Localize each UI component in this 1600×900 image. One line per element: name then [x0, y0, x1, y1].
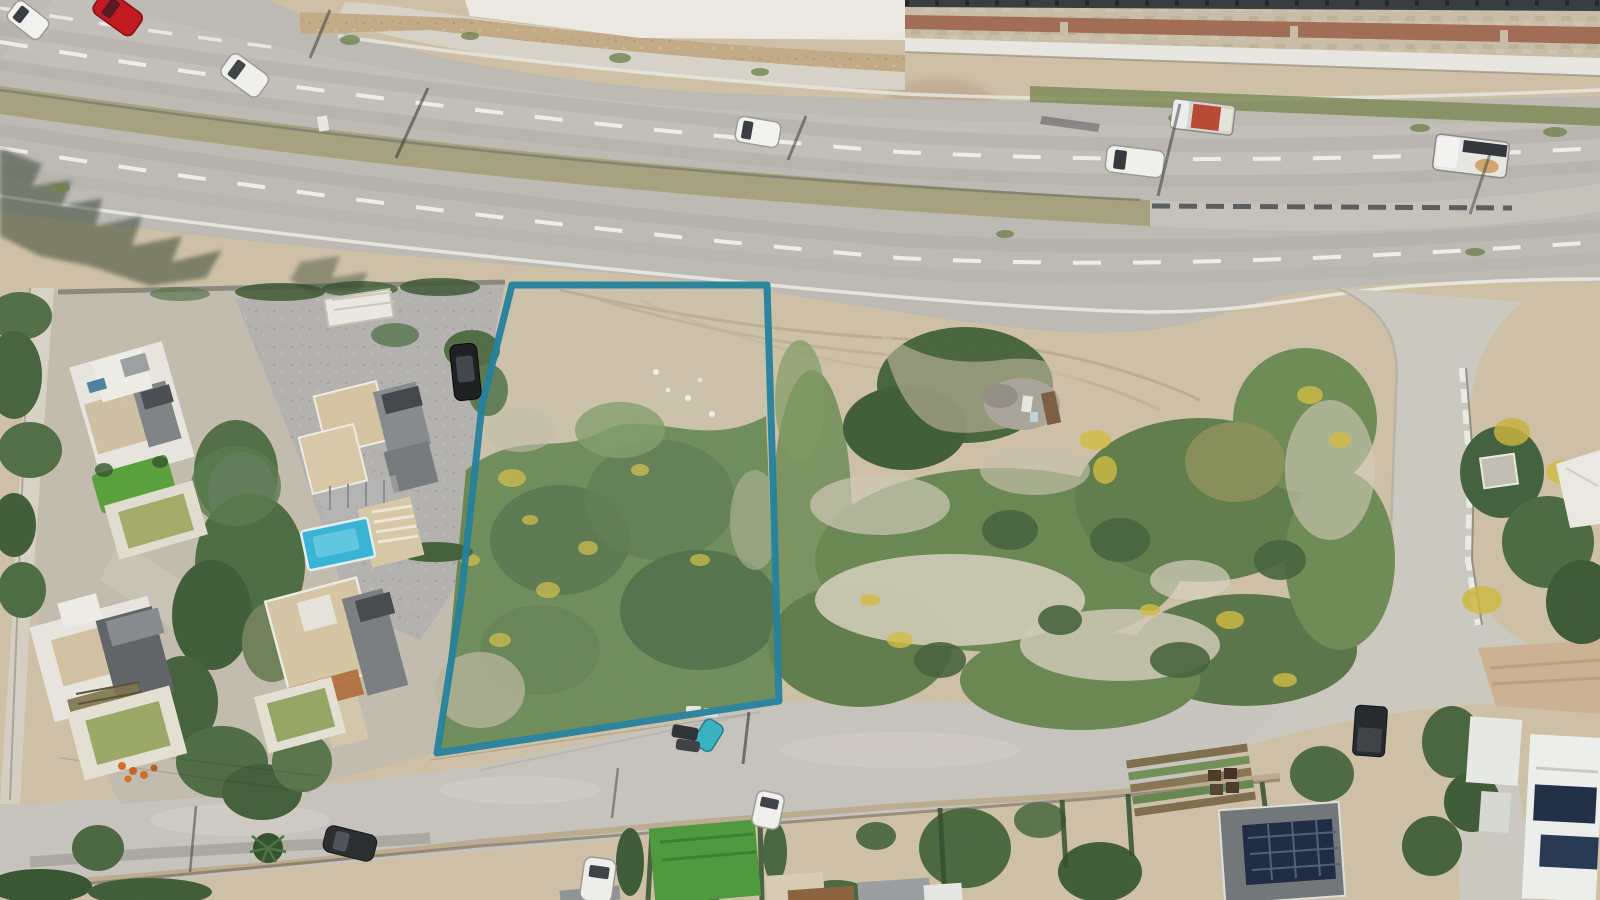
- photo-grain: [0, 0, 1600, 900]
- scene-canvas: [0, 0, 1600, 900]
- aerial-photo: [0, 0, 1600, 900]
